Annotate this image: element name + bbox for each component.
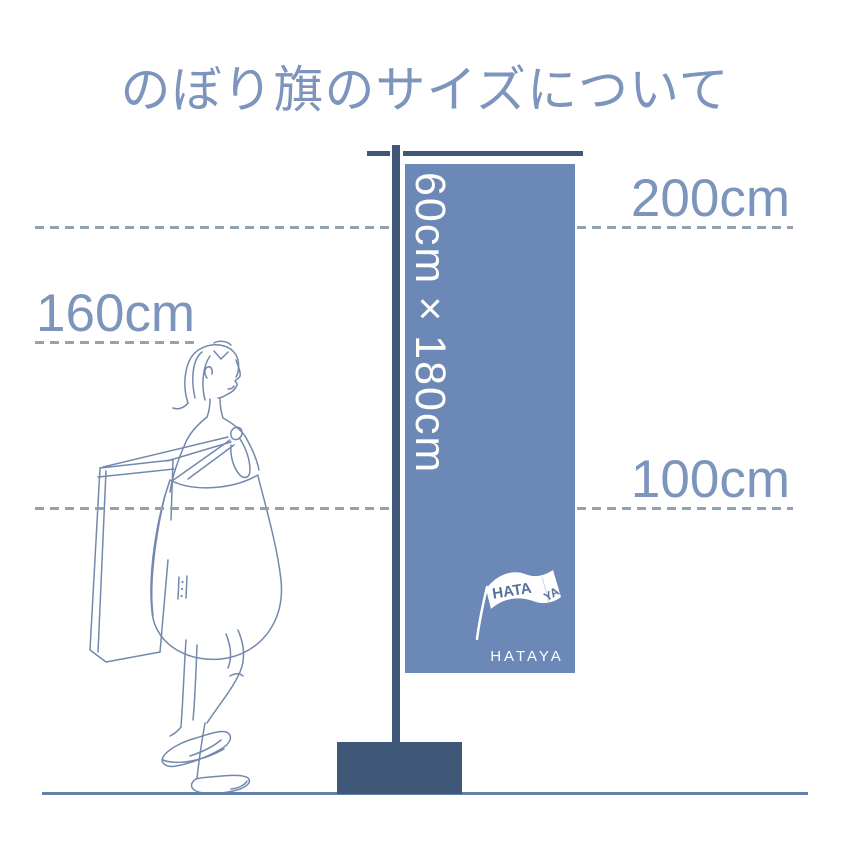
flag-crossbar xyxy=(403,151,583,156)
hataya-flag-icon: HATA YA xyxy=(470,568,570,642)
measurement-label-100cm: 100cm xyxy=(631,453,790,506)
hataya-logo: HATA YA HATAYA xyxy=(468,568,572,665)
measurement-label-200cm: 200cm xyxy=(631,172,790,225)
flag-size-label: 60cm×180cm xyxy=(408,172,451,632)
dashed-line-100cm-left xyxy=(35,507,391,510)
flag-crossbar-left-tip xyxy=(367,151,390,156)
measurement-label-160cm: 160cm xyxy=(36,287,195,340)
nobori-flag: 60cm×180cm HATA YA HATAYA xyxy=(405,164,575,673)
pole-base xyxy=(337,742,462,794)
page-title: のぼり旗のサイズについて xyxy=(0,50,850,122)
flag-pole xyxy=(392,145,400,743)
hataya-brand-label: HATAYA xyxy=(468,648,572,665)
dashed-line-200cm-left xyxy=(35,226,391,229)
